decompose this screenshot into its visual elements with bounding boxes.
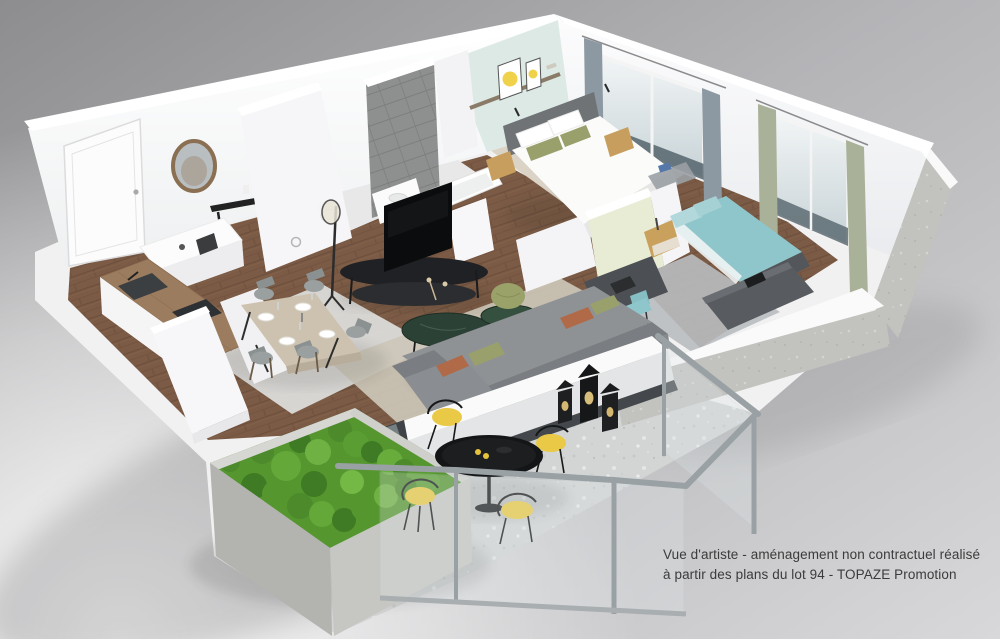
caption: Vue d'artiste - aménagement non contract… xyxy=(663,545,980,584)
console-vase xyxy=(243,185,249,194)
kettle xyxy=(179,244,185,250)
pampas-plume xyxy=(427,278,432,283)
foliage xyxy=(271,451,301,481)
tv-stand-lower xyxy=(352,282,476,306)
plate xyxy=(319,330,335,338)
plate xyxy=(295,303,311,311)
door-handle xyxy=(133,189,138,194)
artist-rendering: Vue d'artiste - aménagement non contract… xyxy=(0,0,1000,639)
pampas-plume xyxy=(443,282,448,287)
mirror-reflection xyxy=(181,156,207,186)
art-yellow-circle xyxy=(529,70,538,79)
foliage xyxy=(301,471,327,497)
glass-panel-front xyxy=(380,472,684,612)
pouf xyxy=(491,283,525,309)
caption-line2: à partir des plans du lot 94 - TOPAZE Pr… xyxy=(663,565,980,585)
master-curtain-right xyxy=(702,88,722,210)
lemon xyxy=(483,453,489,459)
candle-glow xyxy=(562,401,569,411)
foliage xyxy=(340,470,364,494)
caption-line1: Vue d'artiste - aménagement non contract… xyxy=(663,545,980,565)
serving-plate xyxy=(496,447,512,453)
floorplan-3d-scene xyxy=(0,0,1000,639)
candle-glow xyxy=(585,392,594,405)
floor-lamp-shade xyxy=(322,200,340,224)
foliage xyxy=(305,439,331,465)
foliage xyxy=(309,501,335,527)
chair-seat xyxy=(346,326,366,338)
bistro-table-inner xyxy=(442,438,536,472)
candle-glow xyxy=(607,407,614,417)
plate xyxy=(279,337,295,345)
chair-cushion-yellow xyxy=(536,434,566,452)
foliage xyxy=(351,495,377,521)
chair-cushion-yellow xyxy=(432,408,462,426)
chair-seat xyxy=(254,288,274,300)
art-yellow-circle xyxy=(503,72,518,87)
plate xyxy=(258,313,274,321)
chair-seat xyxy=(304,280,324,292)
lemon xyxy=(475,449,481,455)
